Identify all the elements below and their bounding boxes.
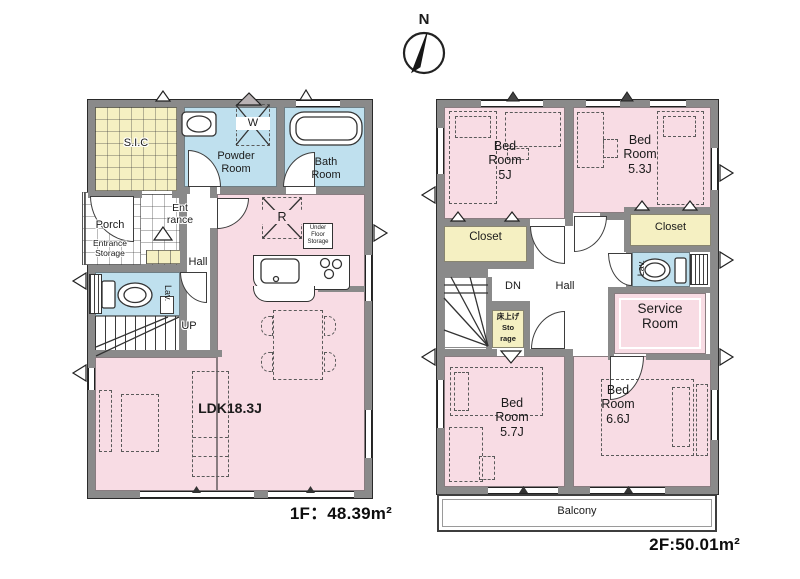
window-arrow-icon xyxy=(421,348,436,366)
floorplan-canvas: N xyxy=(0,0,800,579)
entrance-storage-label: Entrance Storage xyxy=(78,239,142,258)
window-arrow-icon xyxy=(72,364,87,382)
sic-label: S.I.C xyxy=(96,137,176,150)
window-arrow-icon xyxy=(72,272,87,290)
bath-room-label: Bath Room xyxy=(294,156,358,181)
raised-storage-label: 床上げ Sto rage xyxy=(492,312,524,345)
window-arrow-icon xyxy=(373,224,388,242)
lavatory-label: Lav. xyxy=(163,273,173,313)
under-floor-storage-label: Under Floor Storage xyxy=(303,225,333,247)
compass-north-label: N xyxy=(398,11,450,28)
hall-label: Hall xyxy=(178,256,218,269)
entrance-label: Ent rance xyxy=(158,203,202,227)
stairs-down-label: DN xyxy=(499,280,527,293)
bedroom-66j-label: Bed Room 6.6J xyxy=(568,383,668,426)
stairs-up-label: UP xyxy=(174,320,204,333)
balcony-label: Balcony xyxy=(437,505,717,518)
floor1-area-label: 1F：48.39m² xyxy=(250,499,392,524)
closet-left-label: Closet xyxy=(446,231,525,244)
bedroom-5j-label: Bed Room 5J xyxy=(455,139,555,182)
window-arrow-icon xyxy=(719,348,734,366)
ldk-label: LDK18.3J xyxy=(188,401,272,417)
window-arrow-icon xyxy=(719,164,734,182)
hall-2f-label: Hall xyxy=(547,280,583,293)
bedroom-57j-label: Bed Room 5.7J xyxy=(462,396,562,439)
window-arrow-icon xyxy=(421,186,436,204)
window-arrow-icon xyxy=(719,251,734,269)
lavatory-2f-label: Lav. xyxy=(636,248,646,288)
closet-right-label: Closet xyxy=(632,221,709,234)
porch-label: Porch xyxy=(84,219,136,232)
fridge-label: R xyxy=(262,210,302,224)
powder-room-label: Powder Room xyxy=(196,150,276,175)
floor2-area-label: 2F:50.01m² xyxy=(600,535,740,555)
bedroom-53j-label: Bed Room 5.3J xyxy=(590,133,690,176)
service-room-label: Service Room xyxy=(616,301,704,332)
washer-label: W xyxy=(236,117,270,130)
compass-icon xyxy=(402,28,446,76)
